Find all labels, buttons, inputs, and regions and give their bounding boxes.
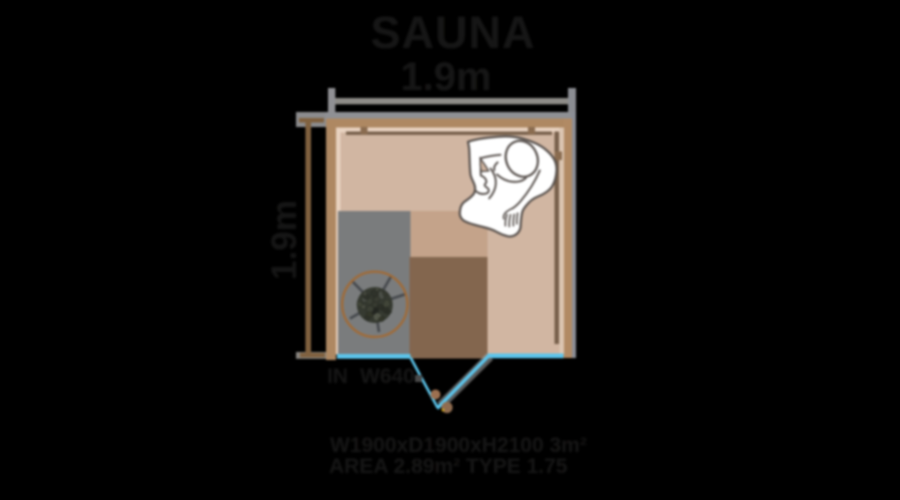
svg-text:AREA 2.89m² TYPE 1.75: AREA 2.89m² TYPE 1.75 [329,455,568,478]
svg-text:IN: IN [327,365,348,388]
svg-text:1.9m: 1.9m [265,200,304,280]
svg-text:SAUNA: SAUNA [370,7,535,58]
svg-text:W1900xD1900xH2100 3m²: W1900xD1900xH2100 3m² [330,434,587,457]
svg-text:W640: W640 [360,365,415,388]
svg-text:1.9m: 1.9m [400,55,491,99]
